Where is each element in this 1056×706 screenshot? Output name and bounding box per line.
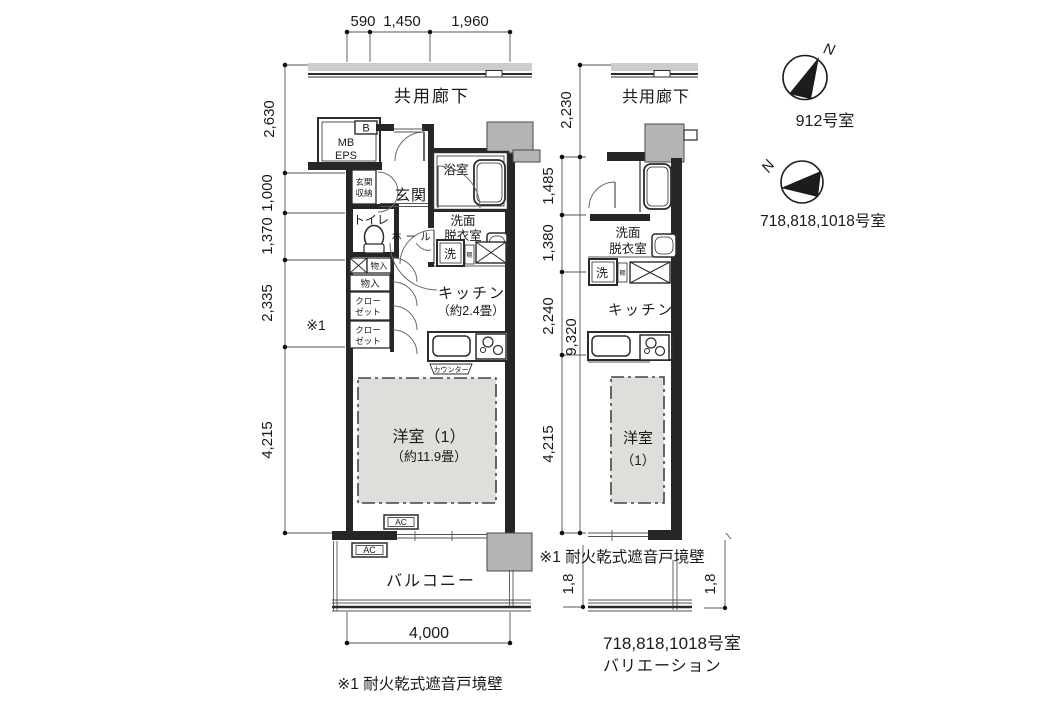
dim-left-2335: 2,335: [259, 284, 276, 322]
dim-top-590: 590: [350, 13, 375, 30]
kitchen-sink: [433, 336, 470, 356]
corridor-label-left: 共用廊下: [394, 87, 470, 106]
duct-x-box: [476, 242, 506, 263]
compass-room-label: 718,818,1018号室: [760, 212, 886, 230]
storage-column: 物入 物入 クロー ゼット クロー ゼット: [350, 258, 391, 348]
dimension-balcony-depth: 1,8 1,8: [560, 533, 731, 610]
balcony-label: バルコニー: [386, 573, 476, 590]
kitchen-label-2: （約2.4畳）: [437, 303, 504, 318]
variation-caption-line1: 718,818,1018号室: [603, 634, 741, 653]
dim-total-9320: 9,320: [563, 318, 580, 356]
bathroom-right: [589, 161, 671, 212]
washroom-label-2: 脱衣室: [609, 241, 647, 256]
corridor-band-right: [611, 64, 698, 77]
corridor-notch-icon: [654, 71, 670, 78]
compass-n-label: N: [822, 40, 837, 59]
balcony-right: [588, 560, 692, 611]
dim-balcony-right: 1,8: [702, 574, 719, 595]
western-room-label-1: 洋室（1）: [393, 428, 466, 446]
b-badge-label: B: [362, 123, 369, 135]
ac-unit-balcony: AC: [352, 543, 387, 557]
dim-left-2630: 2,630: [261, 100, 278, 138]
western-room-left: 洋室（1） （約11.9畳） AC: [358, 378, 496, 529]
closet1-label-1: クロー: [355, 296, 381, 306]
compass-needle-icon: [781, 171, 821, 197]
bottom-note: ※1 耐火乾式遮音戸境壁: [337, 674, 502, 693]
counter-label: カウンター: [434, 365, 469, 374]
closet2-label-1: クロー: [355, 325, 381, 335]
note-ref-left: ※1: [306, 317, 326, 333]
compass-912: N 912号室: [783, 40, 854, 130]
dim-left-4215: 4,215: [259, 421, 276, 459]
washroom: 洗面 脱衣室 洗 棚: [437, 214, 507, 266]
variation-caption-line2: バリエーション: [603, 658, 722, 675]
dim-balcony-left: 1,8: [560, 574, 577, 595]
storage-label-1: 物入: [370, 261, 388, 271]
washer-label: 洗: [596, 266, 608, 280]
dim-left-1000: 1,000: [259, 174, 276, 212]
mb-label: MB: [338, 137, 355, 149]
toilet-label: トイレ: [353, 213, 389, 227]
western-room-right: 洋室 （1）: [611, 377, 664, 503]
washer-label: 洗: [444, 247, 456, 261]
dim-mid-2230: 2,230: [558, 91, 575, 129]
concrete-block-bottom-right: [487, 533, 532, 571]
wall-tab: [684, 130, 697, 140]
kitchen-label: キッチン: [608, 303, 674, 319]
kitchen-sink: [592, 336, 630, 356]
left-plan: 共用廊下 590 1,450 1,960 2,630 1,000 1,370 2…: [259, 13, 540, 693]
shelf-label: 棚: [466, 251, 472, 259]
window-sliding: [397, 531, 490, 541]
duct-x-box: [630, 262, 670, 283]
dim-bottom-4000: 4,000: [409, 625, 449, 642]
genkan-shuno-label-1: 玄関: [355, 177, 372, 187]
western-room-label-1: 洋室: [623, 430, 653, 447]
shelf-label: 棚: [619, 269, 625, 277]
bathroom: 浴室: [433, 152, 508, 210]
compass-718: N 718,818,1018号室: [758, 157, 886, 230]
dimension-middle: 2,230 1,485 1,380 2,240 4,215 9,320: [540, 63, 611, 536]
floorplan-drawing: 共用廊下 590 1,450 1,960 2,630 1,000 1,370 2…: [0, 0, 1056, 706]
ac-unit-room: AC: [384, 515, 418, 529]
washroom-label-1: 洗面: [615, 226, 640, 240]
ac-label-room: AC: [395, 517, 407, 527]
dim-mid-4215: 4,215: [540, 425, 557, 463]
storage-x-box: [350, 258, 367, 273]
corridor-label-right: 共用廊下: [622, 88, 690, 106]
ac-label-balcony: AC: [363, 545, 376, 555]
kitchen-left: キッチン （約2.4畳） カウンター: [428, 285, 508, 374]
dim-mid-2240: 2,240: [540, 297, 557, 335]
mb-eps-box: B MB EPS: [308, 118, 382, 170]
dim-top-1450: 1,450: [383, 13, 421, 30]
dim-left-1370: 1,370: [259, 217, 276, 255]
note-right: ※1 耐火乾式遮音戸境壁: [539, 547, 704, 566]
washroom-right: 洗面 脱衣室 洗 棚: [589, 226, 676, 285]
variation-caption: 718,818,1018号室 バリエーション: [603, 634, 741, 675]
dim-top-1960: 1,960: [451, 13, 489, 30]
storage-label-2: 物入: [360, 278, 380, 290]
genkan-shuno-label-2: 収納: [355, 188, 372, 198]
compass-room-label: 912号室: [796, 112, 855, 130]
stove: [640, 335, 669, 360]
dimension-bottom: 4,000: [345, 612, 513, 645]
compass-needle-icon: [789, 57, 819, 99]
entrance-door: [394, 129, 424, 161]
stove: [476, 334, 506, 359]
dimension-top: 590 1,450 1,960: [345, 13, 513, 62]
dim-mid-1380: 1,380: [540, 224, 557, 262]
corridor-notch-icon: [486, 71, 502, 78]
right-plan: 共用廊下 洗面 脱衣室 洗 棚: [539, 64, 741, 675]
toilet-room: トイレ: [353, 213, 389, 253]
closet2-label-2: ゼット: [355, 336, 381, 346]
dim-mid-1485: 1,485: [540, 167, 557, 205]
washroom-label-1: 洗面: [450, 214, 475, 228]
western-room-label-2: （約11.9畳）: [391, 449, 467, 464]
kitchen-label-1: キッチン: [438, 285, 506, 302]
corridor-band-left: [308, 64, 532, 77]
eps-label: EPS: [335, 150, 357, 162]
genkan-label: 玄関: [395, 187, 427, 204]
western-room-label-2: （1）: [621, 453, 656, 468]
kitchen-right: キッチン: [588, 303, 674, 362]
floorplan-canvas: 共用廊下 590 1,450 1,960 2,630 1,000 1,370 2…: [0, 0, 1056, 706]
compass-n-label: N: [758, 157, 778, 176]
closet1-label-2: ゼット: [355, 307, 381, 317]
